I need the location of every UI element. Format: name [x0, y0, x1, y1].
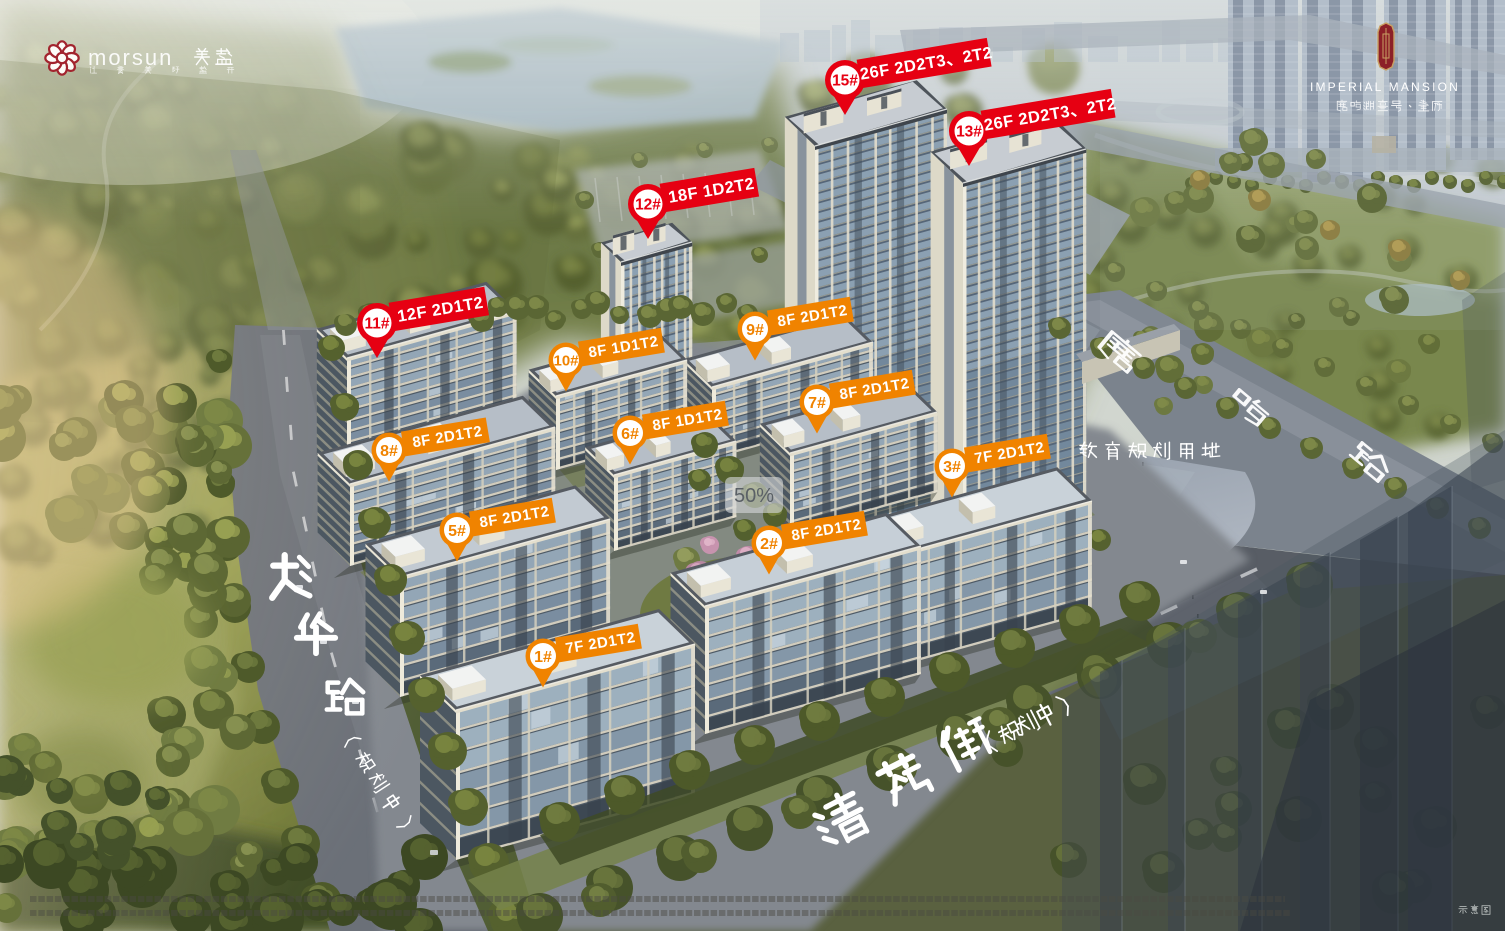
- svg-text:15#: 15#: [832, 73, 858, 90]
- svg-text:10#: 10#: [553, 352, 579, 369]
- svg-text:13#: 13#: [956, 124, 982, 141]
- svg-text:50%: 50%: [734, 485, 774, 507]
- svg-text:3#: 3#: [943, 459, 961, 476]
- svg-text:morsun: morsun: [88, 45, 173, 70]
- svg-text:2#: 2#: [760, 536, 778, 553]
- svg-text:12#: 12#: [635, 197, 661, 214]
- svg-text:11#: 11#: [364, 316, 389, 333]
- svg-text:1#: 1#: [534, 649, 552, 666]
- svg-text:7#: 7#: [808, 395, 826, 412]
- svg-text:8#: 8#: [380, 443, 398, 460]
- svg-text:5#: 5#: [448, 523, 466, 540]
- svg-text:IMPERIAL MANSION: IMPERIAL MANSION: [1310, 80, 1460, 94]
- svg-text:6#: 6#: [621, 426, 639, 443]
- svg-text:9#: 9#: [746, 322, 764, 339]
